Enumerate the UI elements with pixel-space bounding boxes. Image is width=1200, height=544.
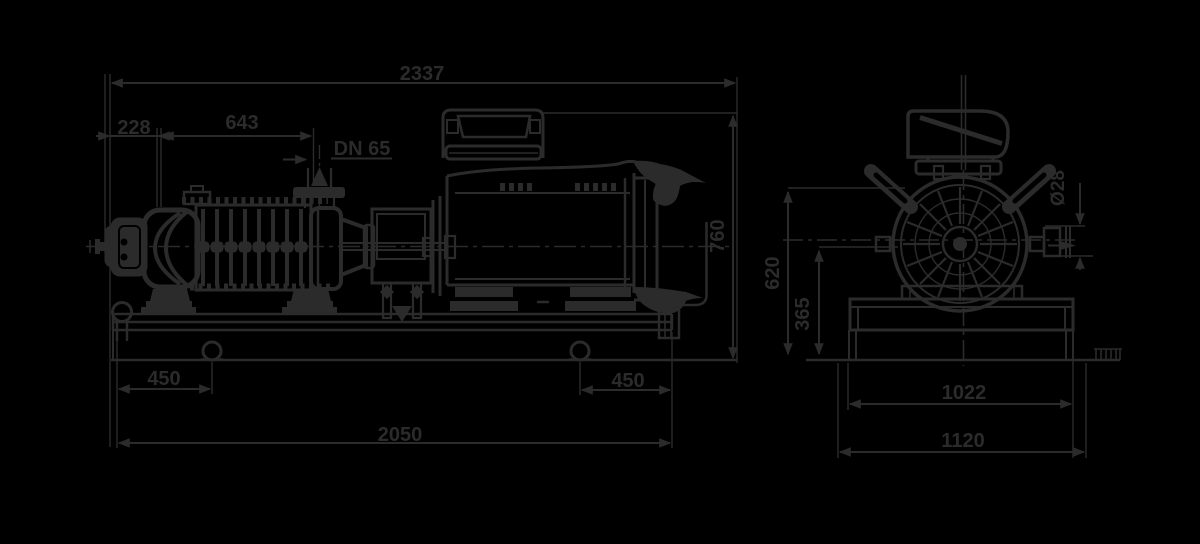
svg-text:1022: 1022 (942, 382, 987, 404)
svg-text:DN 65: DN 65 (334, 138, 391, 160)
svg-text:450: 450 (147, 368, 180, 390)
svg-text:2337: 2337 (400, 63, 445, 85)
svg-text:365: 365 (792, 297, 814, 330)
svg-text:Ø28: Ø28 (1048, 170, 1069, 206)
svg-text:228: 228 (117, 117, 150, 139)
svg-text:450: 450 (611, 370, 644, 392)
svg-text:760: 760 (707, 219, 729, 252)
svg-text:620: 620 (762, 256, 784, 289)
svg-text:2050: 2050 (378, 424, 423, 446)
svg-text:643: 643 (225, 112, 258, 134)
svg-text:1120: 1120 (941, 430, 984, 452)
